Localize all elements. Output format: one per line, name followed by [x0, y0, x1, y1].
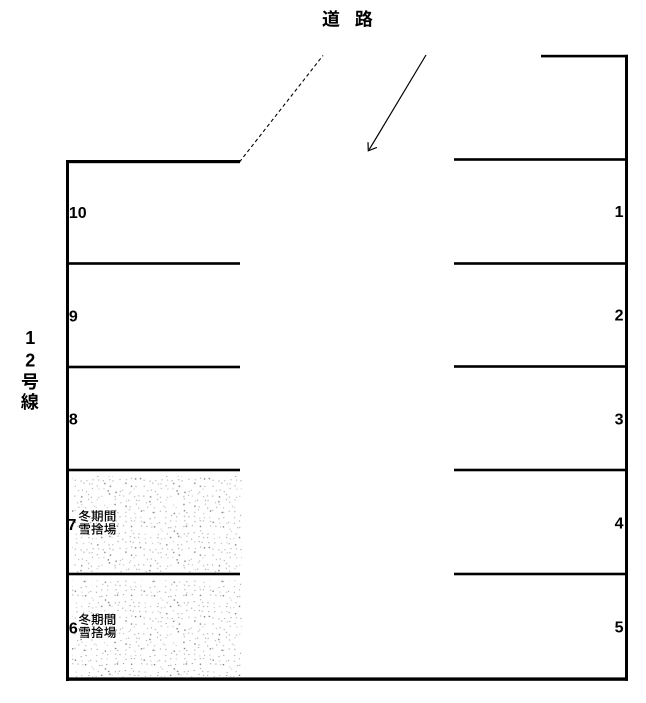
svg-text:6: 6 [69, 621, 78, 638]
svg-text:2: 2 [615, 308, 624, 325]
svg-text:10: 10 [69, 205, 87, 222]
svg-text:3: 3 [615, 412, 624, 429]
svg-text:7: 7 [68, 517, 77, 534]
svg-text:8: 8 [69, 412, 78, 429]
svg-text:9: 9 [69, 308, 78, 325]
svg-text:5: 5 [615, 620, 624, 637]
svg-text:2: 2 [25, 350, 35, 370]
svg-text:4: 4 [615, 516, 624, 533]
svg-text:1: 1 [25, 328, 35, 348]
svg-text:1: 1 [615, 204, 624, 221]
